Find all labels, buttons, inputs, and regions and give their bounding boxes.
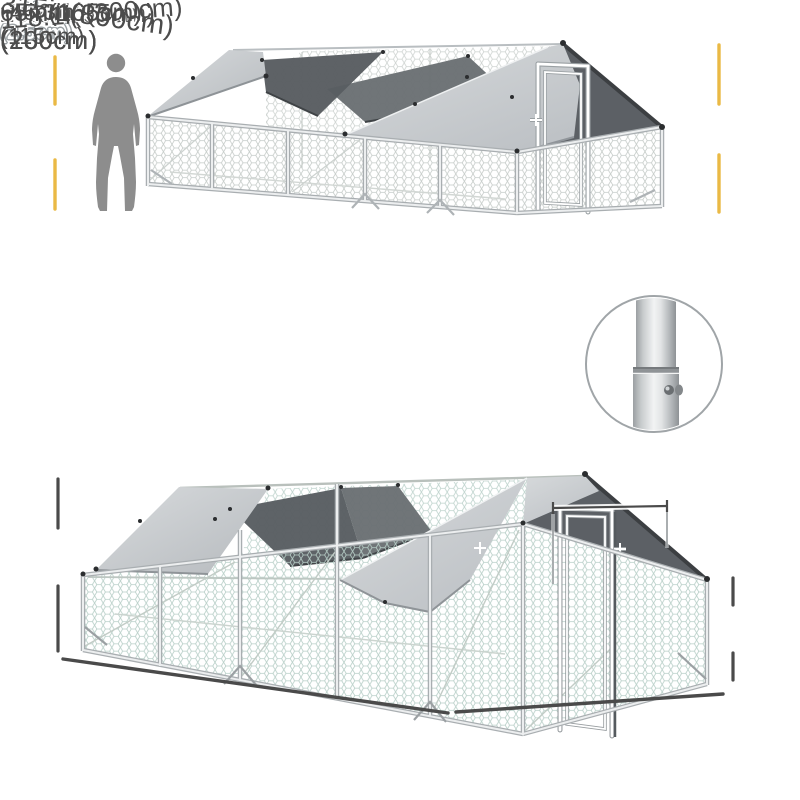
- product-dimension-diagram: 70.9in (180cm) 78.7in (200cm) 1in (2.5cm…: [0, 0, 800, 800]
- push-button: [664, 385, 674, 395]
- pole-joint-detail: [586, 284, 722, 437]
- diagram-artwork: [0, 0, 800, 800]
- lock-pin-nub: [675, 385, 683, 396]
- bottom-cage-illustration: [81, 471, 711, 737]
- top-cage-illustration: [146, 40, 666, 215]
- left-roof-cover: [147, 50, 266, 117]
- person-silhouette-icon: [92, 54, 140, 211]
